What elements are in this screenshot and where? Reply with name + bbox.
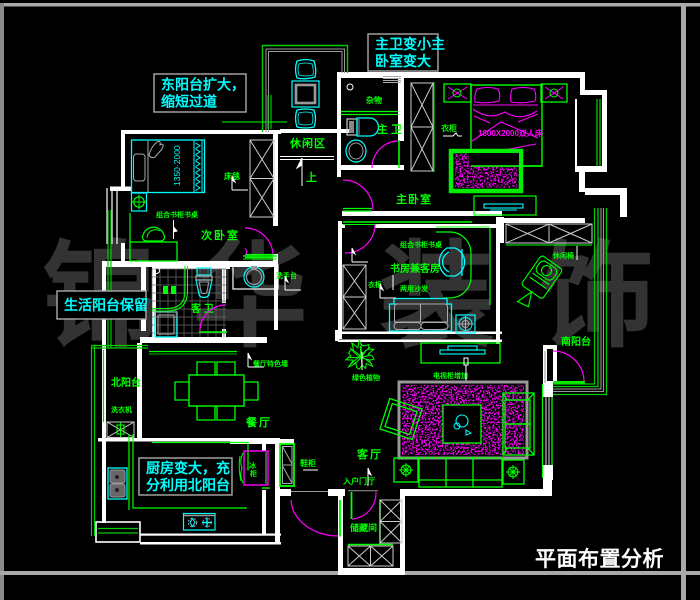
svg-text:主卧室: 主卧室 [396, 192, 432, 206]
svg-text:储藏间: 储藏间 [350, 522, 377, 533]
svg-text:北阳台: 北阳台 [111, 376, 141, 389]
svg-text:厨房变大，充: 厨房变大，充 [146, 460, 230, 476]
svg-text:东阳台扩大，: 东阳台扩大， [161, 76, 245, 92]
svg-text:入户门厅: 入户门厅 [342, 476, 375, 486]
svg-text:柜: 柜 [249, 469, 257, 478]
svg-text:主 卫: 主 卫 [377, 122, 402, 136]
svg-text:杂物: 杂物 [366, 95, 382, 105]
svg-text:分利用北阳台: 分利用北阳台 [146, 477, 230, 493]
svg-text:书房兼客房: 书房兼客房 [390, 262, 440, 275]
svg-text:休闲椅: 休闲椅 [552, 251, 574, 260]
svg-text:休闲区: 休闲区 [289, 136, 326, 150]
svg-text:餐厅: 餐厅 [245, 415, 272, 429]
svg-text:南阳台: 南阳台 [561, 335, 591, 348]
svg-text:洗衣机: 洗衣机 [111, 405, 132, 414]
svg-text:主卫变小主: 主卫变小主 [375, 36, 445, 52]
svg-text:电视柜增加: 电视柜增加 [433, 371, 468, 380]
svg-text:卧室变大: 卧室变大 [375, 53, 431, 69]
svg-text:客厅: 客厅 [356, 447, 383, 461]
svg-text:生活阳台保留: 生活阳台保留 [64, 297, 148, 313]
svg-text:冰: 冰 [249, 461, 257, 470]
svg-text:客 卫: 客 卫 [190, 302, 214, 315]
svg-text:缩短过道: 缩短过道 [161, 93, 217, 109]
svg-text:次卧室: 次卧室 [201, 228, 240, 242]
svg-text:平面布置分析: 平面布置分析 [535, 547, 664, 571]
svg-text:1800X2000双人床: 1800X2000双人床 [478, 128, 544, 138]
svg-text:组合书柜书桌: 组合书柜书桌 [156, 210, 198, 219]
svg-text:鞋柜: 鞋柜 [300, 458, 316, 468]
svg-text:两用沙发: 两用沙发 [400, 284, 429, 293]
svg-text:1350·2000: 1350·2000 [172, 145, 182, 186]
svg-text:组合书柜书桌: 组合书柜书桌 [400, 240, 442, 249]
svg-text:绿色植物: 绿色植物 [352, 373, 380, 382]
svg-text:衣柜: 衣柜 [441, 123, 457, 133]
svg-text:上: 上 [306, 170, 317, 184]
